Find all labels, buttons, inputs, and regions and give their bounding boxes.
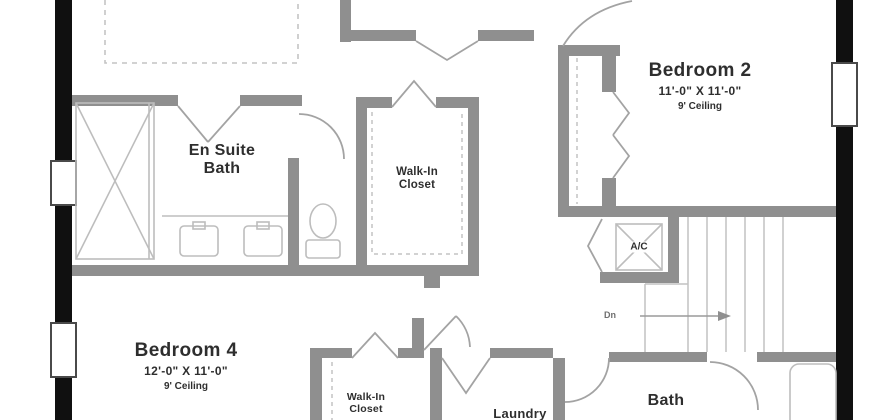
- room-name: Closet: [396, 179, 438, 192]
- room-label-en-suite-bath: En Suite Bath: [189, 142, 255, 179]
- stairs-down-label: Dn: [604, 310, 616, 320]
- toilet: [306, 204, 340, 258]
- room-label-bedroom4-closet: Walk-In Closet: [347, 391, 385, 415]
- room-dimensions: 12'-0" X 11'-0": [135, 365, 238, 379]
- room-dimensions: 11'-0" X 11'-0": [649, 85, 752, 99]
- double-door: [416, 41, 478, 60]
- door-swing: [565, 358, 609, 402]
- bathtub: [790, 364, 836, 420]
- room-label-bedroom4: Bedroom 4 12'-0" X 11'-0" 9' Ceiling: [135, 340, 238, 392]
- room-name: Laundry: [493, 407, 546, 420]
- double-door: [442, 358, 490, 393]
- double-door: [178, 106, 240, 142]
- down-arrow-icon: [640, 311, 731, 321]
- room-name: En Suite: [189, 142, 255, 160]
- door-swing: [299, 114, 344, 159]
- room-name: Bath: [648, 392, 685, 410]
- room-label-ac: A/C: [628, 242, 649, 253]
- room-ceiling-height: 9' Ceiling: [135, 381, 238, 393]
- door-swing: [563, 1, 632, 46]
- room-name: Closet: [347, 403, 385, 415]
- stair-treads: [645, 217, 783, 352]
- door-swing: [710, 362, 758, 410]
- room-label-bedroom2: Bedroom 2 11'-0" X 11'-0" 9' Ceiling: [649, 60, 752, 112]
- vanity-sink: [180, 226, 218, 256]
- room-label-bath: Bath: [648, 392, 685, 410]
- room-name: Bedroom 4: [135, 340, 238, 362]
- room-ceiling-height: 9' Ceiling: [649, 101, 752, 113]
- vanity-sink: [244, 226, 282, 256]
- room-name: Bath: [189, 160, 255, 178]
- double-door: [352, 333, 398, 358]
- room-label-laundry: Laundry: [493, 407, 546, 420]
- room-name: Walk-In: [347, 391, 385, 403]
- double-door: [392, 81, 436, 107]
- bifold-door: [588, 219, 602, 272]
- room-name: Bedroom 2: [649, 60, 752, 82]
- door-swing: [424, 316, 470, 350]
- tray-ceiling-dashed: [105, 0, 298, 63]
- double-vanity: [162, 216, 288, 256]
- room-label-walk-in-closet: Walk-In Closet: [396, 166, 438, 192]
- floor-plan: Bedroom 2 11'-0" X 11'-0" 9' Ceiling En …: [0, 0, 870, 420]
- bifold-door: [613, 92, 629, 178]
- room-name: Walk-In: [396, 166, 438, 179]
- shower-stall: [76, 103, 154, 259]
